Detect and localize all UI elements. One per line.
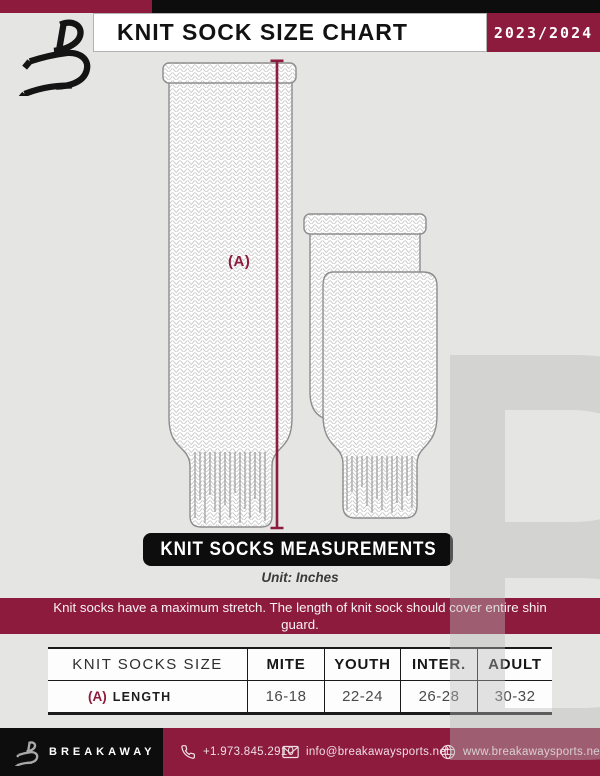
measurement-label-a: (A) [228, 253, 250, 270]
length-value-youth: 22-24 [324, 680, 400, 712]
unit-note: Unit: Inches [0, 570, 600, 585]
measurements-banner: KNIT SOCKS MEASUREMENTS [143, 533, 453, 566]
footer-website: www.breakawaysports.net [440, 728, 600, 776]
size-table-header-adult: ADULT [477, 649, 552, 680]
measurement-line-a [271, 61, 284, 528]
breakaway-b-logo-icon [12, 12, 96, 96]
stretch-notice-banner: Knit socks have a maximum stretch. The l… [0, 598, 600, 634]
globe-icon [440, 744, 456, 760]
footer-email-address: info@breakawaysports.net [306, 746, 450, 758]
footer: BREAKAWAY +1.973.845.2910 info@breakaway… [0, 728, 600, 776]
size-table-header-youth: YOUTH [324, 649, 400, 680]
sock-large [163, 63, 296, 527]
sock-small [323, 272, 437, 518]
page-title: KNIT SOCK SIZE CHART [117, 19, 408, 46]
size-table-header-main: KNIT SOCKS SIZE [48, 649, 247, 680]
footer-brand-name: BREAKAWAY [49, 746, 156, 758]
page-title-box: KNIT SOCK SIZE CHART [93, 13, 487, 52]
footer-email: info@breakawaysports.net [282, 728, 450, 776]
size-table-header-inter: INTER. [400, 649, 477, 680]
stretch-notice-text: Knit socks have a maximum stretch. The l… [50, 599, 550, 633]
length-value-inter: 26-28 [400, 680, 477, 712]
footer-phone-number: +1.973.845.2910 [203, 746, 294, 758]
measurements-banner-label: KNIT SOCKS MEASUREMENTS [160, 539, 436, 561]
breakaway-b-logo-small-icon [13, 739, 40, 766]
footer-phone: +1.973.845.2910 [180, 728, 294, 776]
envelope-icon [282, 745, 299, 759]
row-label-length: LENGTH [113, 690, 172, 704]
length-value-adult: 30-32 [477, 680, 552, 712]
sock-small-ribbing [347, 456, 412, 513]
size-chart-page: KNIT SOCK SIZE CHART 2023/2024 [0, 0, 600, 776]
sock-medium [304, 214, 426, 420]
size-table: KNIT SOCKS SIZE MITE YOUTH INTER. ADULT … [48, 647, 552, 715]
size-table-header-mite: MITE [247, 649, 324, 680]
footer-brand-block: BREAKAWAY [0, 728, 163, 776]
row-key-a: (A) [88, 689, 107, 704]
size-table-row-length: (A) LENGTH [48, 680, 247, 712]
sock-large-ribbing [195, 452, 265, 523]
season-badge: 2023/2024 [487, 13, 600, 52]
top-accent-strip-black [152, 0, 600, 13]
phone-icon [180, 744, 196, 760]
season-label: 2023/2024 [494, 24, 593, 42]
footer-website-url: www.breakawaysports.net [463, 746, 600, 758]
length-value-mite: 16-18 [247, 680, 324, 712]
